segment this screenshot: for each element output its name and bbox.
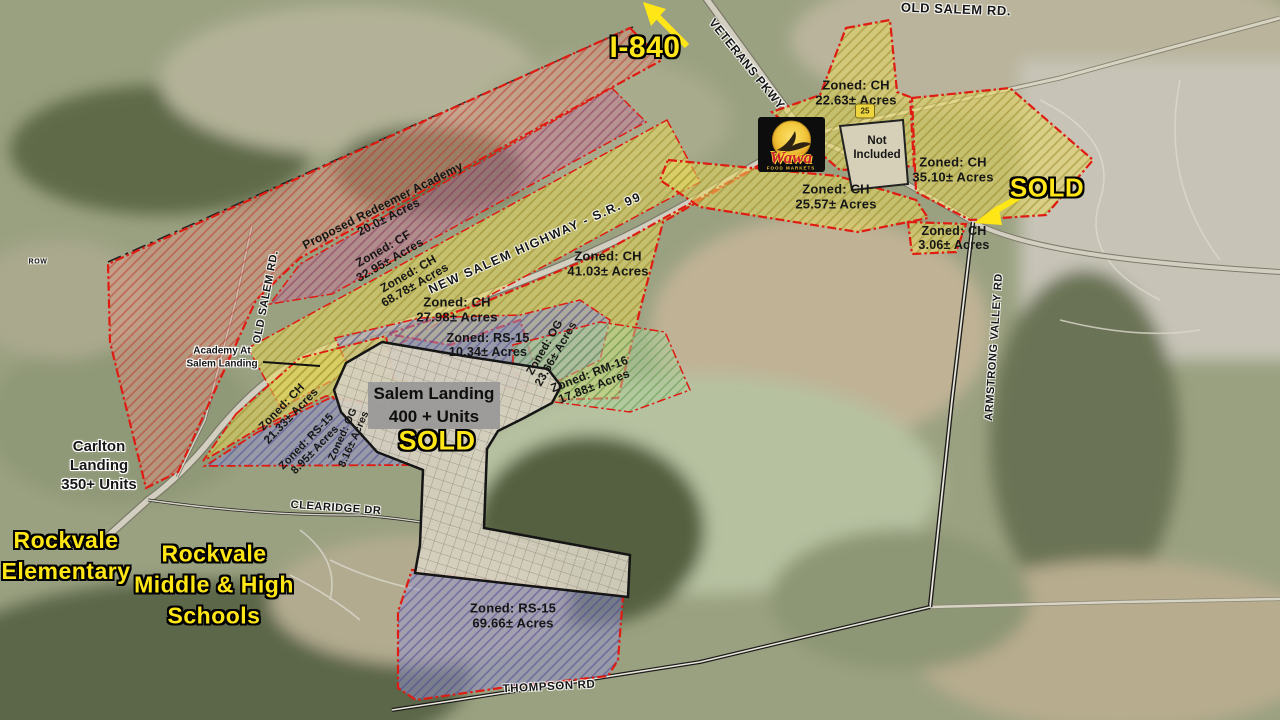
rockvale-middle-high-label: Rockvale Middle & High Schools <box>134 538 294 631</box>
rockvale-elementary-label: Rockvale Elementary <box>1 525 130 587</box>
zone-label-ch-306: Zoned: CH 3.06± Acres <box>918 224 989 252</box>
zone-label-ch-3510: Zoned: CH 35.10± Acres <box>912 155 993 184</box>
sold-callout-mid: SOLD <box>398 426 475 457</box>
zone-label-rs15-6966: Zoned: RS-15 69.66± Acres <box>470 601 556 630</box>
zone-label-rs15-1034: Zoned: RS-15 10.34± Acres <box>447 331 530 359</box>
salem-landing-infobox: Salem Landing 400 + Units <box>368 382 500 429</box>
not-included-label: Not Included <box>853 135 900 163</box>
row-marker: ROW <box>29 259 48 266</box>
sold-callout-top: SOLD <box>1010 173 1084 204</box>
academy-at-salem-landing-label: Academy At Salem Landing <box>186 346 257 371</box>
i840-callout: I-840 <box>610 31 681 65</box>
carlton-landing-label: Carlton Landing 350+ Units <box>61 438 136 494</box>
zone-label-ch-2557: Zoned: CH 25.57± Acres <box>795 182 876 211</box>
aerial-zoning-map: OLD SALEM RD. I-840 VETERANS PKWY ROW Zo… <box>0 0 1280 720</box>
wawa-tagline: FOOD MARKETS <box>767 166 816 171</box>
zone-label-ch-4103: Zoned: CH 41.03± Acres <box>567 249 648 278</box>
zone-label-ch-2798: Zoned: CH 27.98± Acres <box>416 295 497 324</box>
route-shield-icon: 25 <box>855 104 875 119</box>
